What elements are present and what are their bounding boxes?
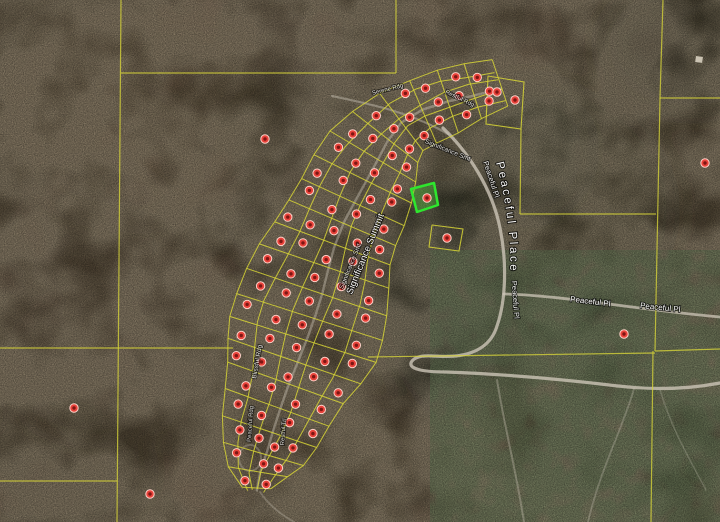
marker-core	[236, 402, 239, 405]
marker-core	[320, 408, 323, 411]
parcel-marker[interactable]	[452, 73, 460, 81]
parcel-marker[interactable]	[339, 176, 347, 184]
marker-core	[295, 346, 298, 349]
parcel-marker[interactable]	[146, 490, 154, 498]
marker-core	[703, 161, 706, 164]
marker-core	[257, 436, 260, 439]
parcel-marker[interactable]	[421, 84, 429, 92]
marker-core	[273, 445, 276, 448]
marker-core	[422, 134, 425, 137]
parcel-marker[interactable]	[473, 73, 481, 81]
parcel-marker[interactable]	[261, 135, 269, 143]
parcel-marker[interactable]	[352, 159, 360, 167]
marker-core	[392, 127, 395, 130]
marker-core	[259, 284, 262, 287]
marker-core	[354, 161, 357, 164]
marker-core	[308, 223, 311, 226]
parcel-marker[interactable]	[388, 198, 396, 206]
marker-core	[513, 98, 516, 101]
parcel-marker[interactable]	[364, 296, 372, 304]
marker-core	[378, 248, 381, 251]
marker-core	[264, 483, 267, 486]
marker-core	[336, 391, 339, 394]
marker-core	[373, 171, 376, 174]
satellite-map-canvas[interactable]: Peaceful PlacePeaceful PlSignificance Sm…	[0, 0, 720, 522]
marker-core	[263, 137, 266, 140]
parcel-marker[interactable]	[313, 169, 321, 177]
parcel-marker[interactable]	[701, 159, 709, 167]
marker-core	[405, 165, 408, 168]
parcel-marker[interactable]	[390, 125, 398, 133]
parcel-marker[interactable]	[369, 134, 377, 142]
parcel-marker[interactable]	[435, 116, 443, 124]
parcel-marker[interactable]	[305, 186, 313, 194]
marker-core	[396, 187, 399, 190]
marker-core	[341, 179, 344, 182]
marker-core	[364, 316, 367, 319]
marker-core	[327, 332, 330, 335]
marker-core	[301, 323, 304, 326]
parcel-marker[interactable]	[282, 289, 290, 297]
parcel-marker[interactable]	[366, 195, 374, 203]
marker-core	[404, 92, 407, 95]
parcel-marker[interactable]	[361, 314, 369, 322]
parcel-marker[interactable]	[462, 110, 470, 118]
parcel-marker[interactable]	[241, 476, 249, 484]
marker-core	[266, 257, 269, 260]
parcel-marker[interactable]	[257, 411, 265, 419]
marker-core	[311, 432, 314, 435]
parcel-marker[interactable]	[232, 351, 240, 359]
parcel-marker[interactable]	[274, 464, 282, 472]
marker-core	[323, 360, 326, 363]
parcel-marker[interactable]	[236, 426, 244, 434]
parcel-marker[interactable]	[375, 269, 383, 277]
marker-core	[487, 99, 490, 102]
marker-core	[244, 384, 247, 387]
parcel-marker[interactable]	[393, 185, 401, 193]
parcel-marker[interactable]	[330, 226, 338, 234]
marker-core	[148, 492, 151, 495]
marker-core	[260, 414, 263, 417]
marker-core	[262, 462, 265, 465]
parcel-marker[interactable]	[291, 400, 299, 408]
marker-core	[279, 240, 282, 243]
marker-core	[238, 428, 241, 431]
marker-core	[294, 402, 297, 405]
marker-core	[488, 89, 491, 92]
parcel-marker[interactable]	[443, 234, 451, 242]
parcel-marker[interactable]	[493, 88, 501, 96]
marker-core	[301, 241, 304, 244]
marker-core	[313, 276, 316, 279]
parcel-marker[interactable]	[299, 239, 307, 247]
parcel-marker[interactable]	[334, 143, 342, 151]
marker-core	[408, 147, 411, 150]
marker-core	[337, 146, 340, 149]
parcel-marker[interactable]	[256, 282, 264, 290]
marker-core	[375, 114, 378, 117]
parcel-marker[interactable]	[434, 98, 442, 106]
marker-core	[390, 200, 393, 203]
marker-core	[622, 332, 625, 335]
parcel-marker[interactable]	[388, 151, 396, 159]
marker-core	[476, 76, 479, 79]
parcel-marker[interactable]	[333, 310, 341, 318]
parcel-marker[interactable]	[311, 273, 319, 281]
marker-core	[274, 318, 277, 321]
marker-core	[408, 116, 411, 119]
parcel-marker[interactable]	[352, 210, 360, 218]
marker-core	[291, 446, 294, 449]
marker-core	[369, 198, 372, 201]
parcel-marker[interactable]	[266, 334, 274, 342]
parcel-marker[interactable]	[511, 96, 519, 104]
marker-core	[335, 312, 338, 315]
marker-core	[330, 208, 333, 211]
parcel-marker[interactable]	[272, 315, 280, 323]
parcel-marker[interactable]	[284, 213, 292, 221]
parcel-marker[interactable]	[309, 373, 317, 381]
parcel-marker[interactable]	[375, 245, 383, 253]
marker-core	[424, 87, 427, 90]
marker-core	[371, 137, 374, 140]
marker-core	[445, 236, 448, 239]
marker-core	[308, 189, 311, 192]
parcel-marker[interactable]	[243, 300, 251, 308]
parcel-marker[interactable]	[263, 255, 271, 263]
parcel-marker[interactable]	[328, 205, 336, 213]
marker-core	[495, 90, 498, 93]
marker-core	[351, 362, 354, 365]
parcel-marker[interactable]	[267, 383, 275, 391]
parcel-marker[interactable]	[292, 343, 300, 351]
parcel-marker[interactable]	[334, 389, 342, 397]
marker-core	[240, 334, 243, 337]
parcel-marker[interactable]	[234, 400, 242, 408]
marker-core	[285, 291, 288, 294]
parcel-marker[interactable]	[255, 434, 263, 442]
marker-core	[454, 75, 457, 78]
marker-core	[245, 303, 248, 306]
parcel-marker[interactable]	[321, 357, 329, 365]
parcel-marker[interactable]	[401, 89, 409, 97]
marker-core	[324, 258, 327, 261]
marker-core	[315, 171, 318, 174]
parcel-marker[interactable]	[405, 145, 413, 153]
marker-core	[289, 272, 292, 275]
marker-core	[332, 229, 335, 232]
marker-core	[355, 212, 358, 215]
parcel-marker[interactable]	[232, 449, 240, 457]
parcel-marker[interactable]	[298, 321, 306, 329]
parcel-marker[interactable]	[402, 163, 410, 171]
marker-core	[312, 375, 315, 378]
marker-core	[367, 299, 370, 302]
marker-core	[382, 227, 385, 230]
parcel-marker[interactable]	[270, 443, 278, 451]
parcel-marker[interactable]	[70, 404, 78, 412]
parcel-marker[interactable]	[348, 130, 356, 138]
parcel-marker[interactable]	[405, 113, 413, 121]
marker-core	[270, 386, 273, 389]
parcel-marker[interactable]	[277, 237, 285, 245]
marker-core	[355, 344, 358, 347]
marker-core	[72, 406, 75, 409]
parcel-marker[interactable]	[322, 255, 330, 263]
parcel-marker[interactable]	[289, 444, 297, 452]
marker-core	[351, 132, 354, 135]
parcel-marker[interactable]	[317, 405, 325, 413]
marker-core	[286, 215, 289, 218]
parcel-marker[interactable]	[485, 97, 493, 105]
parcel-marker[interactable]	[372, 112, 380, 120]
marker-core	[391, 154, 394, 157]
buildings-layer	[695, 56, 703, 63]
marker-core	[308, 299, 311, 302]
map-svg: Peaceful PlacePeaceful PlSignificance Sm…	[0, 0, 720, 522]
marker-core	[235, 451, 238, 454]
parcel-marker[interactable]	[370, 169, 378, 177]
parcel-marker[interactable]	[242, 382, 250, 390]
parcel-marker[interactable]	[284, 373, 292, 381]
parcel-marker[interactable]	[325, 330, 333, 338]
parcel-marker[interactable]	[259, 460, 267, 468]
parcel-marker[interactable]	[262, 480, 270, 488]
parcel-marker[interactable]	[352, 341, 360, 349]
parcel-marker[interactable]	[620, 330, 628, 338]
marker-core	[438, 118, 441, 121]
marker-core	[378, 272, 381, 275]
marker-core	[243, 479, 246, 482]
building	[695, 56, 703, 63]
parcel-marker[interactable]	[237, 331, 245, 339]
marker-core	[425, 196, 428, 199]
marker-core	[465, 113, 468, 116]
parcel-marker[interactable]	[306, 221, 314, 229]
parcel-marker[interactable]	[305, 297, 313, 305]
marker-core	[288, 421, 291, 424]
parcel-marker[interactable]	[287, 270, 295, 278]
marker-core	[235, 354, 238, 357]
highlighted-parcel-marker[interactable]	[423, 194, 431, 202]
marker-core	[286, 375, 289, 378]
marker-core	[437, 100, 440, 103]
marker-core	[268, 337, 271, 340]
parcel-marker[interactable]	[309, 429, 317, 437]
marker-core	[277, 466, 280, 469]
parcel-marker[interactable]	[348, 359, 356, 367]
